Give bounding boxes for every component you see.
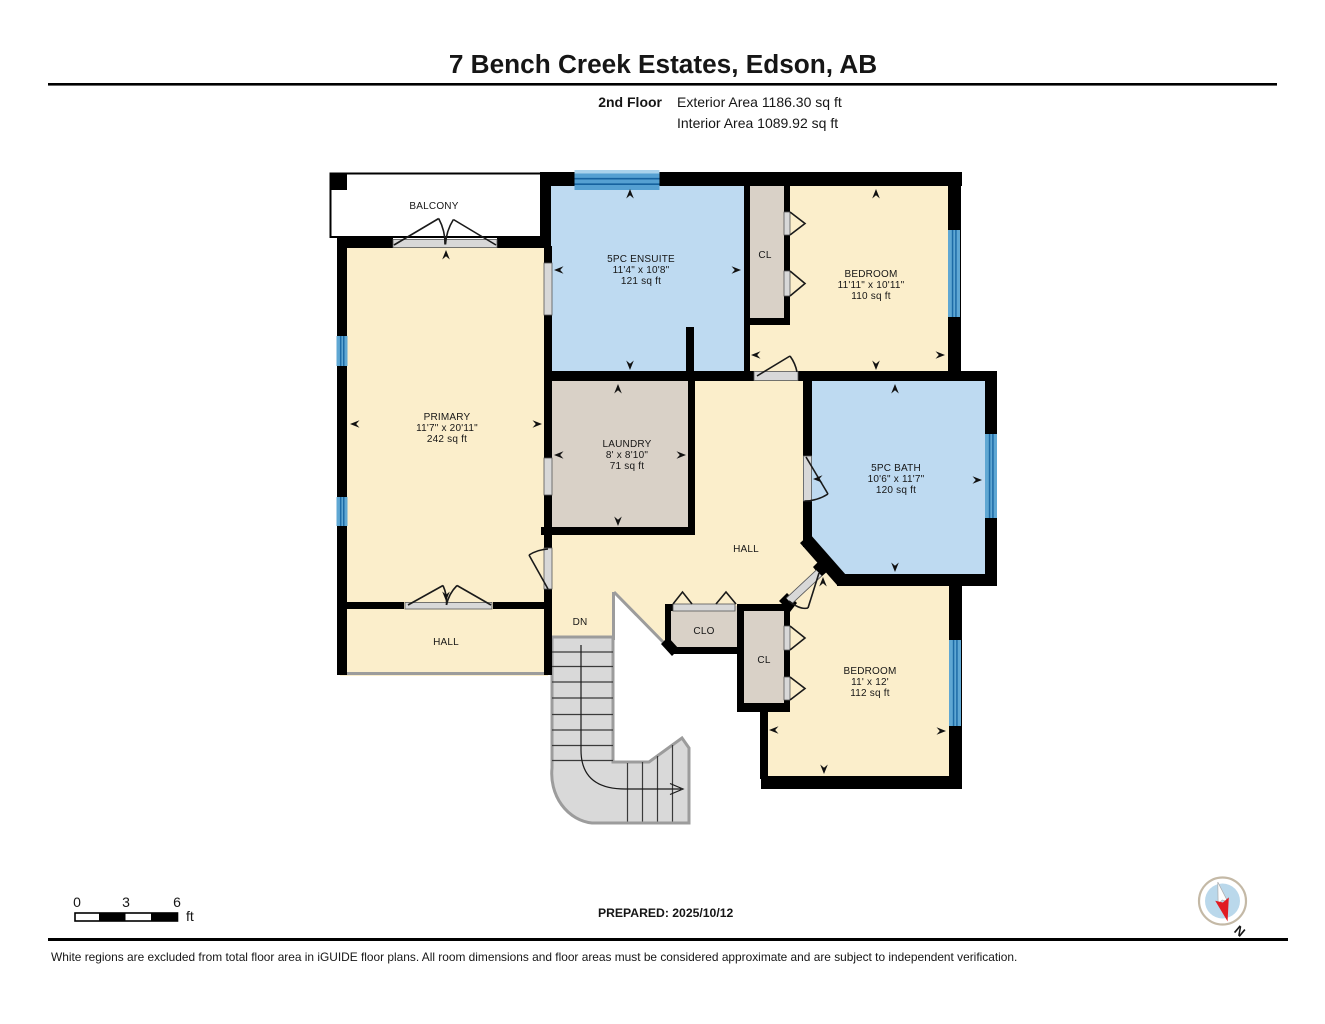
svg-text:3: 3	[122, 894, 130, 910]
svg-text:CL: CL	[757, 655, 770, 666]
svg-text:8' x 8'10": 8' x 8'10"	[606, 450, 648, 461]
svg-text:LAUNDRY: LAUNDRY	[602, 439, 651, 450]
svg-text:7 Bench Creek Estates, Edson,: 7 Bench Creek Estates, Edson, AB	[449, 49, 877, 79]
svg-text:5PC ENSUITE: 5PC ENSUITE	[607, 254, 675, 265]
svg-text:2nd Floor: 2nd Floor	[598, 94, 662, 110]
svg-text:110 sq ft: 110 sq ft	[851, 291, 890, 302]
svg-text:11'11" x 10'11": 11'11" x 10'11"	[838, 280, 905, 291]
svg-text:CLO: CLO	[693, 626, 714, 637]
svg-text:11'7" x 20'11": 11'7" x 20'11"	[416, 423, 478, 434]
svg-text:5PC BATH: 5PC BATH	[871, 463, 921, 474]
svg-text:PRIMARY: PRIMARY	[424, 412, 471, 423]
svg-text:112 sq ft: 112 sq ft	[850, 688, 889, 699]
svg-text:Exterior Area 1186.30 sq ft: Exterior Area 1186.30 sq ft	[677, 94, 842, 110]
svg-text:11' x 12': 11' x 12'	[851, 677, 889, 688]
svg-text:BEDROOM: BEDROOM	[843, 666, 896, 677]
svg-text:0: 0	[73, 894, 81, 910]
svg-text:71 sq ft: 71 sq ft	[610, 461, 644, 472]
svg-text:N: N	[1231, 922, 1248, 940]
svg-text:BEDROOM: BEDROOM	[844, 269, 897, 280]
svg-text:6: 6	[173, 894, 181, 910]
svg-text:121 sq ft: 121 sq ft	[621, 276, 661, 287]
svg-text:ft: ft	[186, 908, 194, 924]
svg-text:120 sq ft: 120 sq ft	[876, 485, 916, 496]
svg-text:10'6" x 11'7": 10'6" x 11'7"	[868, 474, 925, 485]
svg-text:DN: DN	[573, 617, 588, 628]
svg-text:BALCONY: BALCONY	[409, 201, 458, 212]
svg-text:11'4" x 10'8": 11'4" x 10'8"	[613, 265, 670, 276]
svg-text:HALL: HALL	[433, 637, 459, 648]
svg-text:PREPARED: 2025/10/12: PREPARED: 2025/10/12	[598, 906, 733, 920]
svg-text:White regions are excluded fro: White regions are excluded from total fl…	[51, 950, 1017, 964]
svg-text:HALL: HALL	[733, 544, 759, 555]
svg-text:Interior Area 1089.92 sq ft: Interior Area 1089.92 sq ft	[677, 115, 838, 131]
svg-text:CL: CL	[758, 250, 771, 261]
svg-text:242 sq ft: 242 sq ft	[427, 434, 467, 445]
